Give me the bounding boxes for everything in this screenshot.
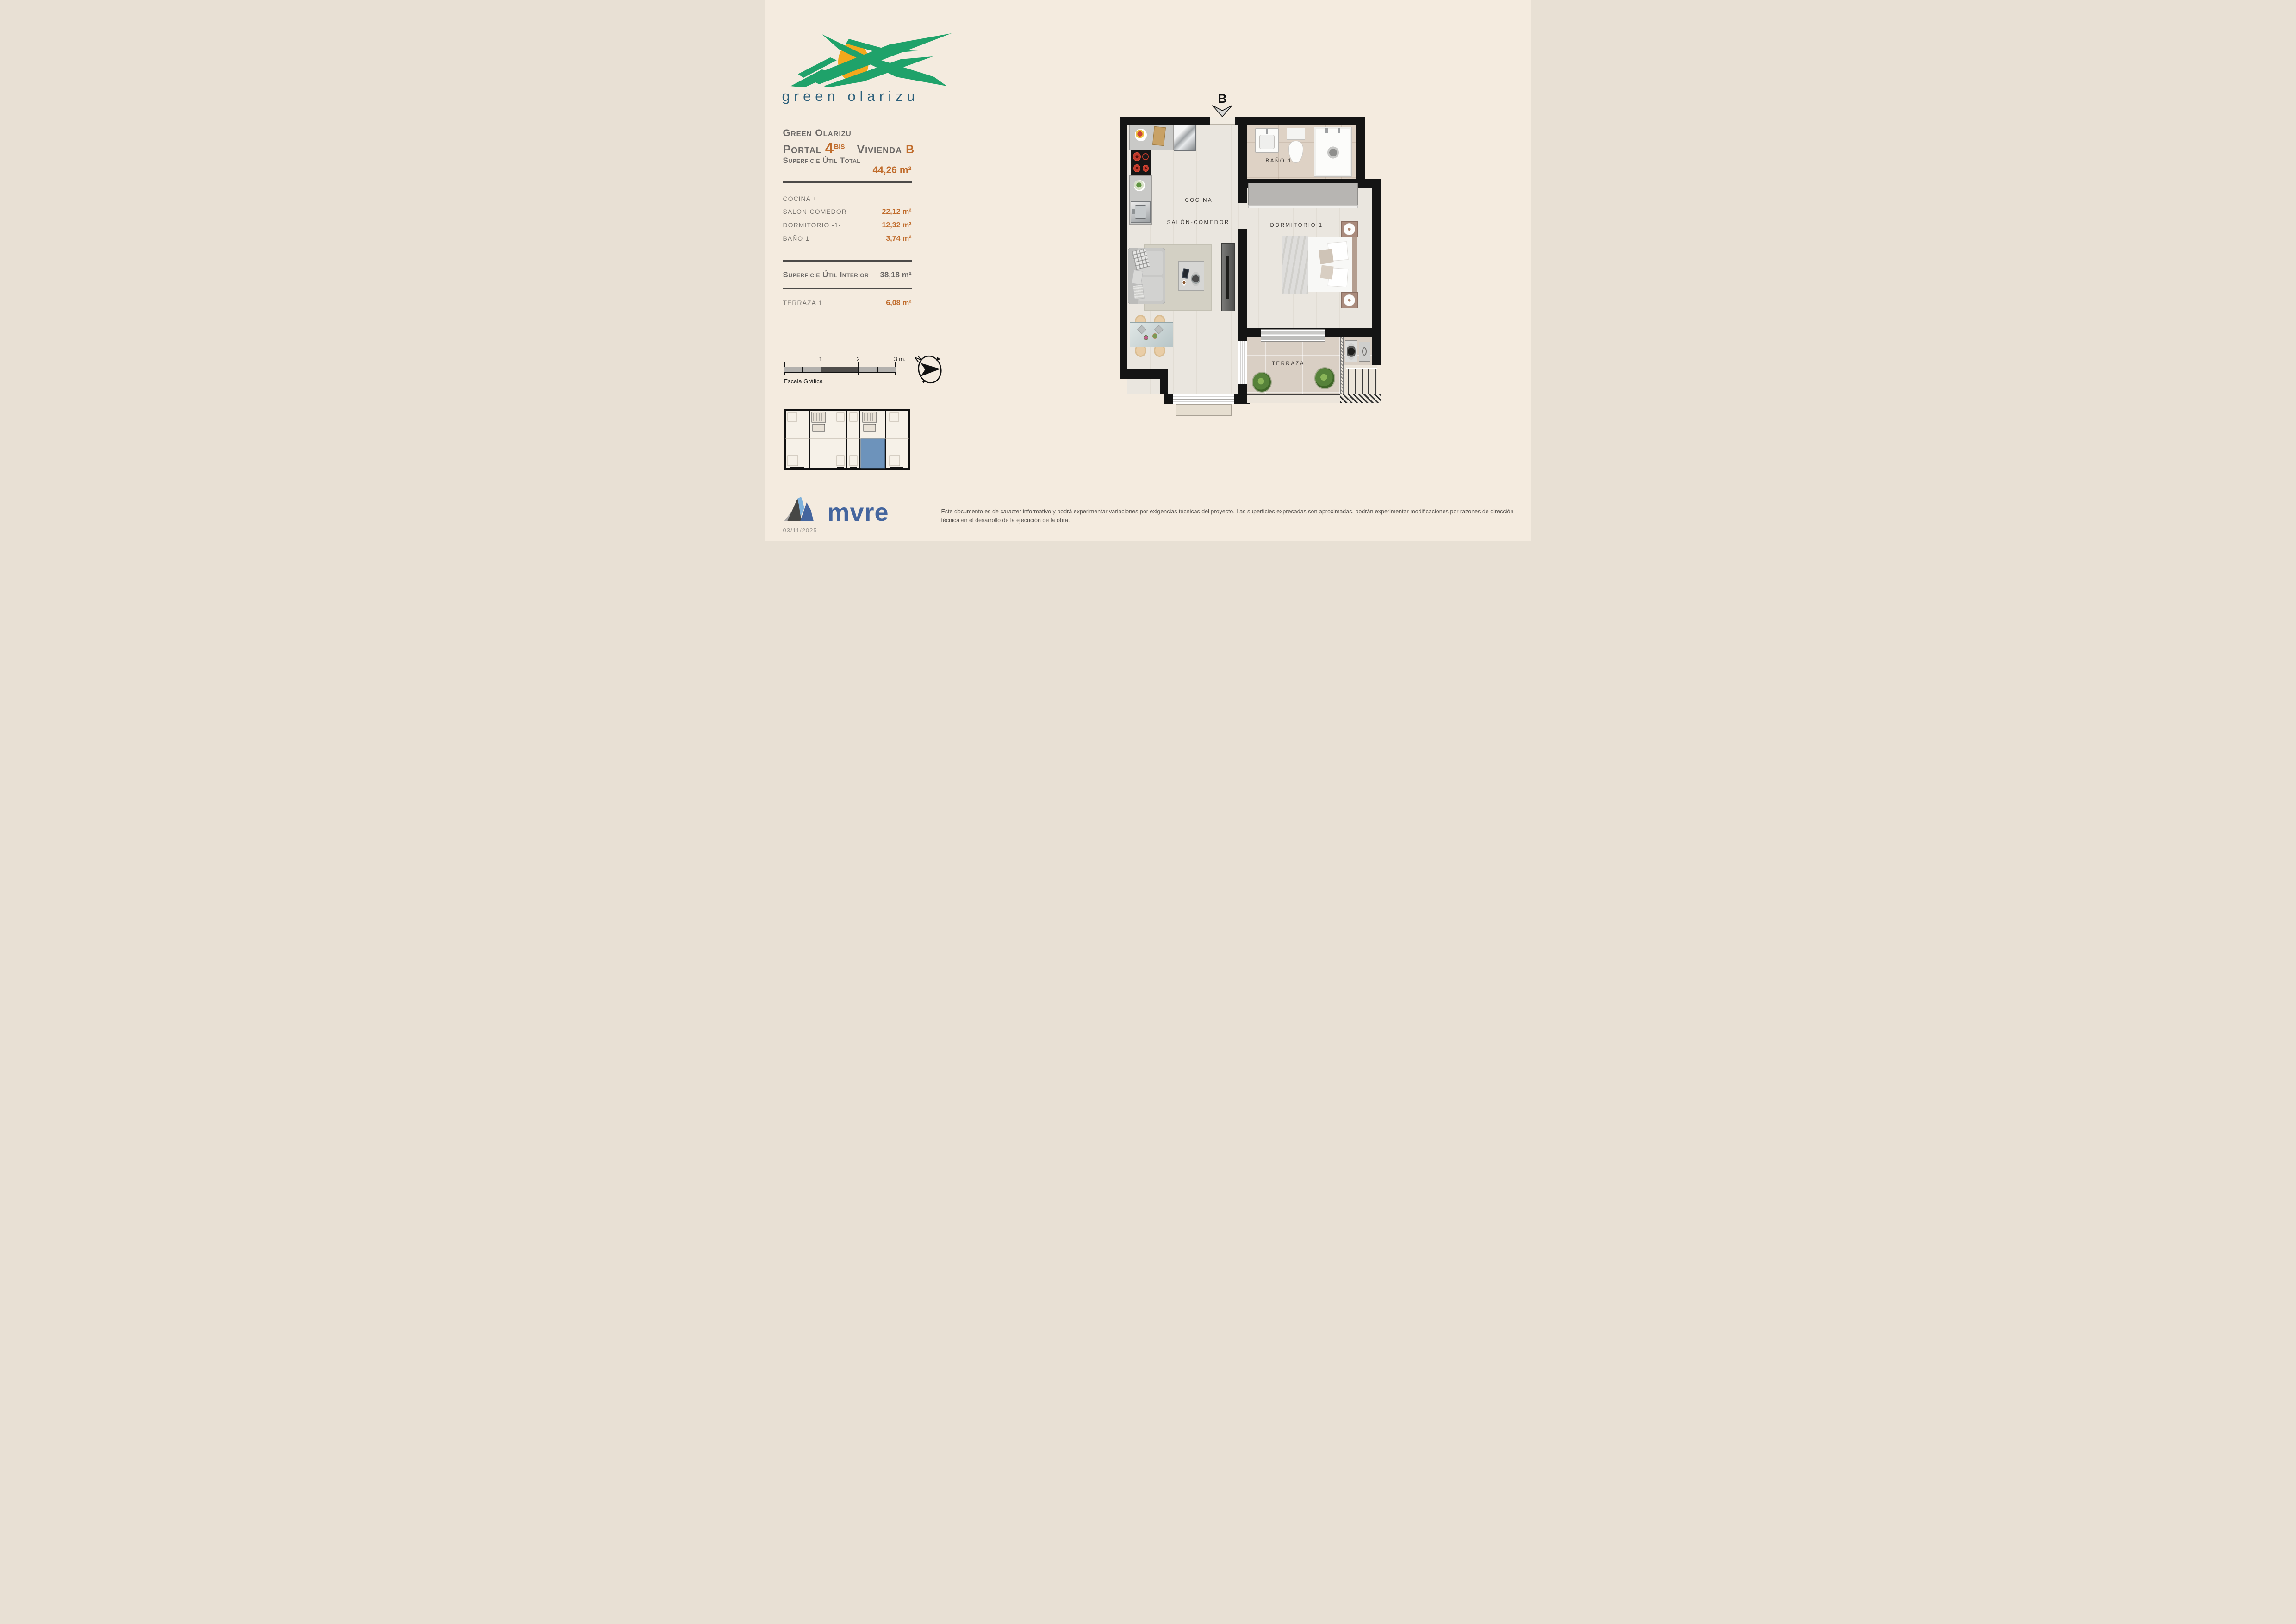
entry-door-opening (1210, 117, 1235, 125)
highlighted-unit (861, 439, 885, 468)
bathroom-sink-icon (1255, 128, 1278, 153)
railing-bars-icon (1346, 368, 1377, 394)
scale-tick-label: 1 (819, 356, 822, 362)
section-b-letter: B (1210, 93, 1235, 105)
terrace-slab-edge (1247, 394, 1340, 403)
living-window (1173, 394, 1234, 404)
interior-area-row: Superficie Útil Interior 38,18 m² (783, 270, 912, 280)
nightstand-icon (1341, 292, 1358, 308)
terrace-area-row: TERRAZA 1 6,08 m² (783, 299, 912, 307)
mvre-logo-icon (783, 496, 829, 522)
glass-partition (1340, 337, 1344, 394)
floor-plan: B (1120, 117, 1381, 404)
kitchen-sink-icon (1131, 201, 1150, 223)
brand-wordmark: green olarizu (782, 88, 919, 105)
unit-title: Portal 4BIS Vivienda B (783, 139, 915, 157)
label-bano: BAÑO 1 (1266, 158, 1292, 164)
blanket (1282, 236, 1308, 294)
bedroom-door-opening (1238, 203, 1247, 229)
label-dormitorio: DORMITORIO 1 (1270, 223, 1323, 228)
water-heater-icon (1359, 342, 1370, 362)
divider-line (783, 181, 912, 183)
green-olarizu-logo-icon (779, 31, 960, 88)
scale-tick-label: 3 m. (894, 356, 906, 362)
dining-table-icon (1130, 322, 1173, 347)
mvre-wordmark: mvre (828, 498, 889, 527)
label-terraza: TERRAZA (1272, 361, 1305, 367)
floorplan-sheet: green olarizu Green Olarizu Portal 4BIS … (765, 0, 1531, 541)
living-terrace-window (1238, 341, 1247, 384)
area-row: DORMITORIO -1- 12,32 m² (783, 221, 912, 230)
graphic-scale: 1 2 3 m. Escala Gráfica (784, 356, 923, 385)
plant-icon (1253, 373, 1271, 392)
fruit-bowl-icon (1135, 129, 1147, 141)
divider-line (783, 288, 912, 289)
washing-machine-icon (1345, 340, 1357, 362)
compass-north-icon: N (915, 352, 944, 385)
area-row: SALON-COMEDOR 22,12 m² (783, 208, 912, 216)
vivienda-label: Vivienda (857, 143, 902, 156)
svg-text:N: N (915, 354, 923, 364)
railing-edge-hatch (1340, 394, 1381, 403)
window-sill (1176, 404, 1232, 416)
wardrobe-shelf (1248, 205, 1358, 208)
building-key-plan (784, 409, 910, 470)
double-bed-icon (1282, 237, 1357, 292)
plant-icon (1315, 368, 1335, 388)
label-cocina: COCINA (1185, 198, 1213, 203)
portal-suffix: BIS (834, 143, 845, 150)
area-row: BAÑO 1 3,74 m² (783, 235, 912, 243)
scale-caption: Escala Gráfica (784, 378, 823, 385)
vivienda-letter: B (906, 143, 915, 156)
entry-arrow-icon (1212, 105, 1232, 117)
tv-unit-icon (1221, 243, 1234, 311)
total-area-label: Superficie Útil Total (783, 156, 861, 165)
scale-tick-label: 2 (857, 356, 860, 362)
cooktop-icon (1131, 150, 1151, 176)
fridge-icon (1174, 125, 1196, 151)
area-row: COCINA + (783, 195, 912, 202)
document-date: 03/11/2025 (783, 527, 817, 534)
scale-bar-segments (784, 367, 896, 373)
headboard (1352, 237, 1357, 293)
project-title: Green Olarizu (783, 128, 852, 139)
portal-label: Portal (783, 143, 821, 156)
coffee-table-icon (1178, 261, 1204, 291)
sofa-icon (1128, 248, 1165, 304)
divider-line (783, 260, 912, 262)
disclaimer-text: Este documento es de caracter informativ… (941, 507, 1523, 525)
cutting-board-icon (1152, 126, 1166, 146)
terrace-slider-window (1261, 329, 1325, 342)
portal-number: 4 (825, 139, 834, 156)
total-area-value: 44,26 m² (783, 165, 912, 176)
wardrobe-icon (1248, 183, 1358, 205)
label-salon-comedor: SALÓN-COMEDOR (1167, 220, 1229, 225)
nightstand-icon (1341, 221, 1358, 237)
shower-tray-icon (1314, 127, 1352, 177)
section-b-marker: B (1210, 93, 1235, 119)
